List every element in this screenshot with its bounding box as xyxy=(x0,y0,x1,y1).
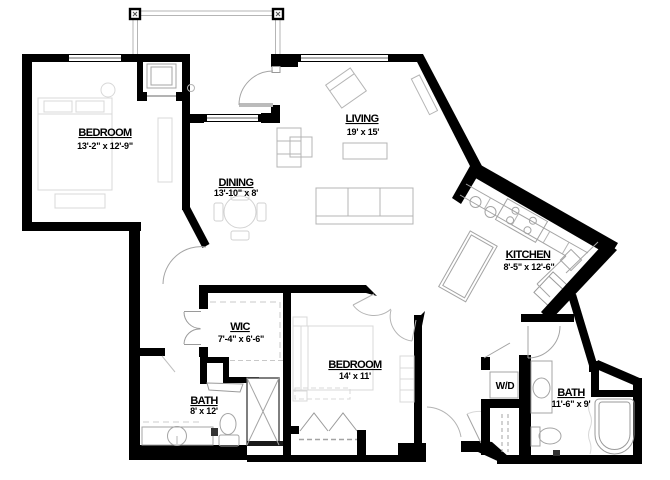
svg-text:WIC: WIC xyxy=(230,321,250,333)
svg-text:14' x 11': 14' x 11' xyxy=(339,371,371,381)
svg-text:BEDROOM: BEDROOM xyxy=(328,359,382,371)
svg-text:19' x 15': 19' x 15' xyxy=(347,127,380,137)
svg-text:13'-10" x 8': 13'-10" x 8' xyxy=(214,188,258,198)
svg-text:7'-4" x 6'-6": 7'-4" x 6'-6" xyxy=(218,334,264,344)
svg-text:8' x 12': 8' x 12' xyxy=(190,406,218,416)
svg-text:KITCHEN: KITCHEN xyxy=(506,249,551,261)
svg-text:LIVING: LIVING xyxy=(345,113,378,125)
svg-text:BEDROOM: BEDROOM xyxy=(78,127,132,139)
svg-text:BATH: BATH xyxy=(557,387,585,399)
svg-text:W/D: W/D xyxy=(496,381,515,392)
svg-text:11'-6" x 9': 11'-6" x 9' xyxy=(552,399,591,409)
svg-text:8'-5" x 12'-6": 8'-5" x 12'-6" xyxy=(503,262,554,272)
svg-text:13'-2" x 12'-9": 13'-2" x 12'-9" xyxy=(77,141,133,151)
